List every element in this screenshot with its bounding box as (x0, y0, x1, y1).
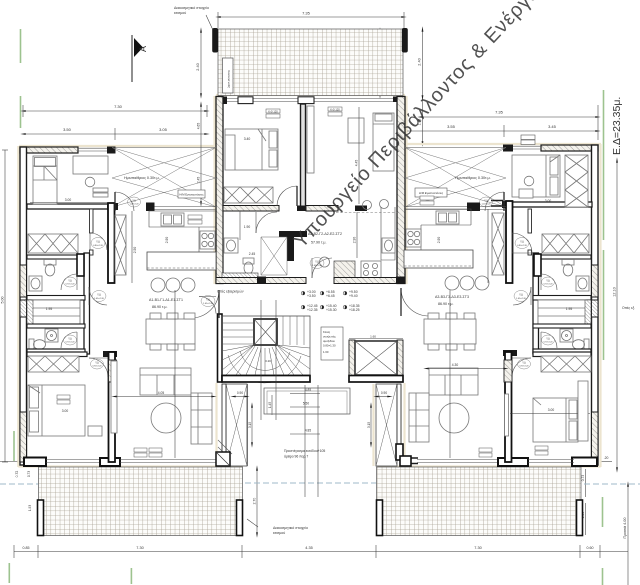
svg-text:7.30: 7.30 (136, 546, 143, 550)
svg-text:1.60: 1.60 (370, 335, 376, 339)
svg-text:3.45: 3.45 (548, 124, 557, 129)
svg-text:1.45: 1.45 (268, 402, 272, 408)
svg-text:+3.50: +3.50 (307, 294, 316, 298)
svg-text:Οπές εξ.: Οπές εξ. (622, 306, 635, 310)
svg-text:2.45: 2.45 (197, 177, 201, 184)
svg-text:Υ.Δ: Υ.Δ (520, 239, 524, 243)
svg-text:Υ.Δ: Υ.Δ (95, 361, 99, 364)
svg-text:3.15: 3.15 (367, 422, 371, 428)
svg-text:0.90: 0.90 (237, 391, 243, 395)
svg-text:κτισμού: κτισμού (174, 11, 186, 15)
svg-text:0.70×2.20: 0.70×2.20 (544, 283, 554, 286)
svg-text:Υ.Δ: Υ.Δ (68, 279, 72, 282)
svg-text:Α3-Β3-Γ3-Δ3-Ε3-ΣΤ3: Α3-Β3-Γ3-Δ3-Ε3-ΣΤ3 (435, 295, 469, 299)
svg-text:3.00: 3.00 (545, 199, 552, 203)
svg-text:0.90: 0.90 (381, 391, 387, 395)
svg-text:0.70×2.20: 0.70×2.20 (66, 341, 76, 344)
svg-text:1.60: 1.60 (323, 350, 329, 354)
svg-text:Η/Μ Εγκαταστάσεις: Η/Μ Εγκαταστάσεις (419, 191, 444, 195)
svg-text:3.20: 3.20 (265, 359, 271, 363)
svg-text:4.85: 4.85 (305, 429, 311, 433)
svg-text:2.50: 2.50 (133, 247, 137, 254)
svg-text:Υ.Δ: Υ.Δ (96, 239, 100, 243)
svg-text:3.15: 3.15 (248, 422, 252, 428)
svg-text:1.95: 1.95 (566, 307, 573, 311)
svg-text:4.65: 4.65 (197, 123, 201, 130)
svg-text:+6.45: +6.45 (326, 294, 335, 298)
svg-text:4.85: 4.85 (305, 388, 311, 392)
svg-text:Υ.Δ: Υ.Δ (206, 297, 210, 301)
svg-text:Ημιυπαίθριος 0.30τ.μ.: Ημιυπαίθριος 0.30τ.μ. (455, 176, 491, 180)
svg-text:0.60: 0.60 (587, 546, 594, 550)
svg-text:Κ.Θ 120: Κ.Θ 120 (268, 109, 278, 113)
svg-text:1.05×2.20: 1.05×2.20 (94, 297, 105, 300)
svg-text:Υ.Δ: Υ.Δ (522, 361, 526, 364)
svg-text:Οπές εξαερισμών: Οπές εξαερισμών (217, 290, 244, 294)
svg-text:0.73: 0.73 (581, 475, 585, 482)
svg-text:1.20×2.20: 1.20×2.20 (482, 203, 492, 206)
svg-text:5.00: 5.00 (1, 297, 5, 304)
svg-text:3.00: 3.00 (548, 408, 555, 412)
svg-text:7.30: 7.30 (114, 104, 123, 109)
svg-text:4.35: 4.35 (305, 546, 312, 550)
svg-text:7.30: 7.30 (474, 546, 481, 550)
svg-text:+12.35: +12.35 (307, 308, 318, 312)
svg-text:0.90×2.20: 0.90×2.20 (520, 365, 530, 368)
svg-text:+18.25: +18.25 (349, 308, 360, 312)
svg-text:Διακοσμητικό στοιχείο: Διακοσμητικό στοιχείο (174, 6, 209, 10)
svg-text:0.70×2.20: 0.70×2.20 (544, 341, 554, 344)
svg-text:2.90: 2.90 (353, 237, 357, 244)
svg-text:3.00: 3.00 (62, 409, 69, 413)
svg-text:άρθρο 96 παρ.7: άρθρο 96 παρ.7 (284, 455, 308, 459)
svg-text:7.35: 7.35 (495, 110, 504, 115)
svg-text:5.50: 5.50 (303, 402, 309, 406)
svg-text:+9.40: +9.40 (349, 294, 358, 298)
svg-text:86.90 τ.μ.: 86.90 τ.μ. (438, 302, 453, 306)
svg-text:Διακοσμητικό στοιχείο: Διακοσμητικό στοιχείο (273, 526, 308, 530)
svg-text:Υ.Δ: Υ.Δ (484, 199, 488, 202)
svg-text:0.70×2.20: 0.70×2.20 (66, 283, 76, 286)
svg-text:0.73: 0.73 (27, 471, 31, 477)
svg-text:1.05×2.20: 1.05×2.20 (516, 297, 527, 300)
svg-text:Ε.Δ=23.35μ.: Ε.Δ=23.35μ. (611, 97, 623, 155)
svg-text:Κ.Θ 120: Κ.Θ 120 (330, 107, 340, 111)
svg-text:A: A (138, 46, 148, 52)
svg-text:1.20×2.20: 1.20×2.20 (130, 203, 140, 206)
svg-text:+15.30: +15.30 (326, 308, 337, 312)
svg-text:αμαξιδίου: αμαξιδίου (323, 339, 335, 343)
svg-text:2.40: 2.40 (418, 58, 422, 65)
svg-text:2.45: 2.45 (249, 252, 256, 256)
svg-text:4.30: 4.30 (452, 363, 459, 367)
svg-text:Υ.Δ: Υ.Δ (519, 292, 523, 296)
svg-text:86.90 τ.μ.: 86.90 τ.μ. (152, 305, 167, 309)
svg-text:Υ.Δ: Υ.Δ (546, 279, 550, 282)
svg-text:Υ.Δ: Υ.Δ (132, 199, 136, 202)
svg-text:Υ.Δ: Υ.Δ (315, 259, 319, 263)
svg-text:3.50: 3.50 (63, 127, 72, 132)
svg-text:3.05: 3.05 (159, 127, 168, 132)
svg-text:Προστέγασμα εισόδου+105: Προστέγασμα εισόδου+105 (284, 449, 325, 453)
svg-text:Υ.Δ: Υ.Δ (97, 292, 101, 296)
svg-text:1.93: 1.93 (28, 505, 32, 511)
svg-text:3.55: 3.55 (447, 124, 456, 129)
svg-text:0.80×1.30: 0.80×1.30 (323, 344, 336, 348)
svg-text:1.90: 1.90 (244, 225, 251, 229)
svg-text:Α1-Β1-Γ1-Δ1-Ε1-ΣΤ1: Α1-Β1-Γ1-Δ1-Ε1-ΣΤ1 (149, 298, 183, 302)
svg-text:κτισμού: κτισμού (273, 531, 285, 535)
svg-text:.20: .20 (604, 456, 609, 460)
svg-text:2.70: 2.70 (253, 498, 257, 505)
svg-text:0.90×2.20: 0.90×2.20 (93, 365, 103, 368)
svg-text:1.05×2.20: 1.05×2.20 (312, 264, 323, 267)
svg-text:2.40: 2.40 (196, 63, 200, 70)
svg-text:0.85: 0.85 (23, 546, 30, 550)
svg-text:2.90: 2.90 (437, 237, 441, 244)
svg-text:3.00: 3.00 (65, 198, 72, 202)
svg-text:7.35: 7.35 (302, 11, 311, 16)
svg-text:1.95: 1.95 (46, 307, 53, 311)
svg-text:0.90×2.20: 0.90×2.20 (517, 244, 528, 247)
svg-text:12.10: 12.10 (612, 287, 616, 297)
svg-text:Κλίση: Κλίση (323, 330, 331, 334)
svg-text:0.90×2.20: 0.90×2.20 (93, 244, 104, 247)
svg-text:ζαρντ.φύτευσης: ζαρντ.φύτευσης (227, 69, 231, 88)
svg-text:Ημιυπαίθριος 0.30τ.μ.: Ημιυπαίθριος 0.30τ.μ. (124, 176, 160, 180)
svg-text:Πρασιά 4.00: Πρασιά 4.00 (623, 518, 627, 539)
svg-text:1.05×2.20: 1.05×2.20 (203, 302, 214, 305)
svg-text:Υ.Δ: Υ.Δ (68, 337, 72, 340)
svg-text:Υ.Δ: Υ.Δ (546, 337, 550, 340)
svg-text:0.72: 0.72 (15, 471, 19, 478)
svg-text:Η/Μ Εγκαταστάσεις: Η/Μ Εγκαταστάσεις (179, 193, 204, 197)
svg-text:3.40: 3.40 (244, 137, 251, 141)
svg-text:2.90: 2.90 (165, 237, 169, 244)
svg-text:4.05: 4.05 (158, 391, 165, 395)
svg-text:ανυψωτής: ανυψωτής (323, 335, 336, 339)
